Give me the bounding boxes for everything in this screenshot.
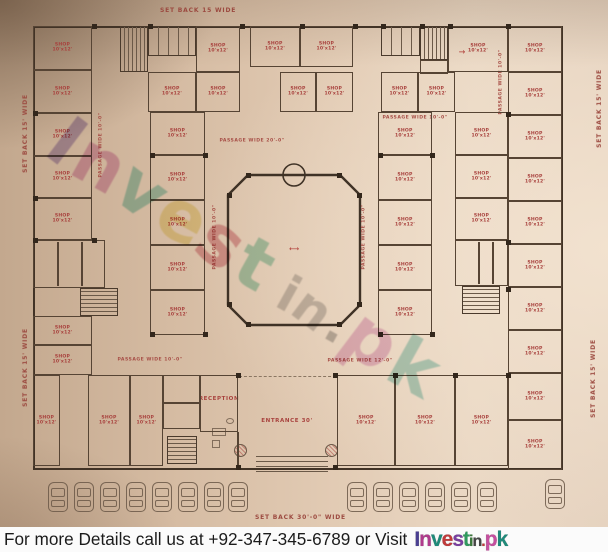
pillar [33,196,38,201]
shop-room [200,375,238,432]
passage-label: PASSAGE WIDE 10'-0" [117,358,182,363]
shop-label: SHOP10'x12' [208,44,228,55]
shop-label: SHOP10'x12' [162,87,182,98]
pillar [506,240,511,245]
pillar [381,24,386,29]
logo-letter: n [473,533,482,551]
logo-letter: v [431,528,442,552]
shop-label: SHOP10'x12' [53,214,73,225]
logo-letter: k [497,528,508,552]
passage-label-vertical: PASSAGE WIDE 10'-0" [362,204,367,269]
floor-plan-photo: SET BACK 15 WIDE SET BACK 15' WIDE SET B… [0,0,608,552]
passage-label: PASSAGE WIDE 20'-0" [219,139,284,144]
entrance-label: ENTRANCE 30' [261,418,312,424]
shop-label: SHOP10'x12' [472,214,492,225]
entrance-open-line [239,376,336,377]
parked-car [228,482,248,512]
pillar [506,112,511,117]
shop-label: SHOP10'x12' [53,43,73,54]
shop-label: SHOP10'x12' [137,415,157,426]
shop-label: SHOP10'x12' [288,87,308,98]
parked-car [48,482,68,512]
shop-label: SHOP10'x12' [472,171,492,182]
pillar [333,465,338,470]
logo-letter: s [452,528,463,552]
shop-label: SHOP10'x12' [53,325,73,336]
shop-label: SHOP10'x12' [525,131,545,142]
pillar [506,287,511,292]
footer-bar: For more Details call us at +92-347-345-… [0,527,608,552]
pillar [430,153,435,158]
shop-label: SHOP10'x12' [395,262,415,273]
setback-label-bottom: SET BACK 30'-0" WIDE [255,514,346,521]
shop-label: SHOP10'x12' [415,415,435,426]
shop-label: SHOP10'x12' [525,88,545,99]
shop-label: SHOP10'x12' [53,86,73,97]
pillar [33,111,38,116]
shop-room [163,403,200,429]
pillar [300,24,305,29]
logo-letter: e [442,528,453,552]
shop-label: SHOP10'x12' [395,217,415,228]
shop-label: SHOP10'x12' [472,415,492,426]
shop-label: SHOP10'x12' [525,440,545,451]
shop-label: SHOP10'x12' [525,346,545,357]
parked-car [126,482,146,512]
shop-label: SHOP10'x12' [390,87,410,98]
pillar [506,24,511,29]
shop-label: SHOP10'x12' [265,41,285,52]
pillar [240,24,245,29]
watermark-letter [258,294,272,305]
pillar [246,322,251,327]
parked-car [100,482,120,512]
staircase [167,436,197,464]
setback-label-right-upper: SET BACK 15' WIDE [596,69,603,148]
pillar [448,24,453,29]
setback-label-right-lower: SET BACK 15' WIDE [590,339,597,418]
partition-wall [81,242,83,286]
shop-label: SHOP10'x12' [325,87,345,98]
shop-label: SHOP10'x12' [395,172,415,183]
shop-label: SHOP10'x12' [37,415,57,426]
pillar [236,373,241,378]
shop-room [33,240,105,288]
staircase [80,288,118,316]
shop-label: SHOP10'x12' [53,355,73,366]
shop-label: SHOP10'x12' [168,128,188,139]
pillar [333,373,338,378]
pillar [150,332,155,337]
setback-label-left-lower: SET BACK 15' WIDE [22,328,29,407]
pillar [353,24,358,29]
entrance-steps [256,452,328,472]
footer-message: For more Details call us at +92-347-345-… [4,529,407,550]
shop-label: SHOP10'x12' [472,128,492,139]
staircase [420,26,448,60]
pillar [246,173,251,178]
pillar [506,373,511,378]
wc-stalls [148,26,196,56]
staircase [462,286,500,314]
logo-letter: p [485,528,497,552]
pillar [92,238,97,243]
pillar [337,173,342,178]
parked-car [347,482,367,512]
parked-car [399,482,419,512]
parked-car [373,482,393,512]
partition-wall [492,242,494,284]
pillar [420,24,425,29]
investin-pk-logo: Investin.pk [414,528,507,552]
pillar [236,465,241,470]
pillar [227,302,232,307]
parked-car [74,482,94,512]
setback-label-top: SET BACK 15 WIDE [160,7,236,14]
pillar [453,373,458,378]
shop-label: SHOP10'x12' [525,217,545,228]
parked-car [178,482,198,512]
shop-label: SHOP10'x12' [427,87,447,98]
parked-car [425,482,445,512]
logo-letter: n [419,528,431,552]
pillar [357,193,362,198]
shop-room [163,375,200,403]
pillar [203,332,208,337]
shop-label: SHOP10'x12' [525,44,545,55]
pillar [92,24,97,29]
shop-label: SHOP10'x12' [525,391,545,402]
shop-room [420,60,448,74]
partition-wall [478,242,480,284]
shop-label: SHOP10'x12' [168,307,188,318]
shop-label: SHOP10'x12' [395,128,415,139]
shop-label: SHOP10'x12' [356,415,376,426]
shop-label: SHOP10'x12' [99,415,119,426]
shop-label: SHOP10'x12' [525,303,545,314]
pillar [378,153,383,158]
parked-car [477,482,497,512]
pillar [148,24,153,29]
parked-car [152,482,172,512]
shop-label: SHOP10'x12' [468,44,488,55]
shop-label: SHOP10'x12' [208,87,228,98]
shop-label: SHOP10'x12' [525,174,545,185]
planter [234,444,247,457]
reception-desk [212,440,220,448]
pillar [33,238,38,243]
shop-label: SHOP10'x12' [317,41,337,52]
pillar [203,153,208,158]
staircase [120,26,148,72]
shop-room [455,240,508,286]
partition-wall [57,242,59,286]
setback-label-left-upper: SET BACK 15' WIDE [22,94,29,173]
wc-stalls [381,26,420,56]
parked-car [451,482,471,512]
shop-label: SHOP10'x12' [525,260,545,271]
parked-car [545,479,565,509]
parked-car [204,482,224,512]
